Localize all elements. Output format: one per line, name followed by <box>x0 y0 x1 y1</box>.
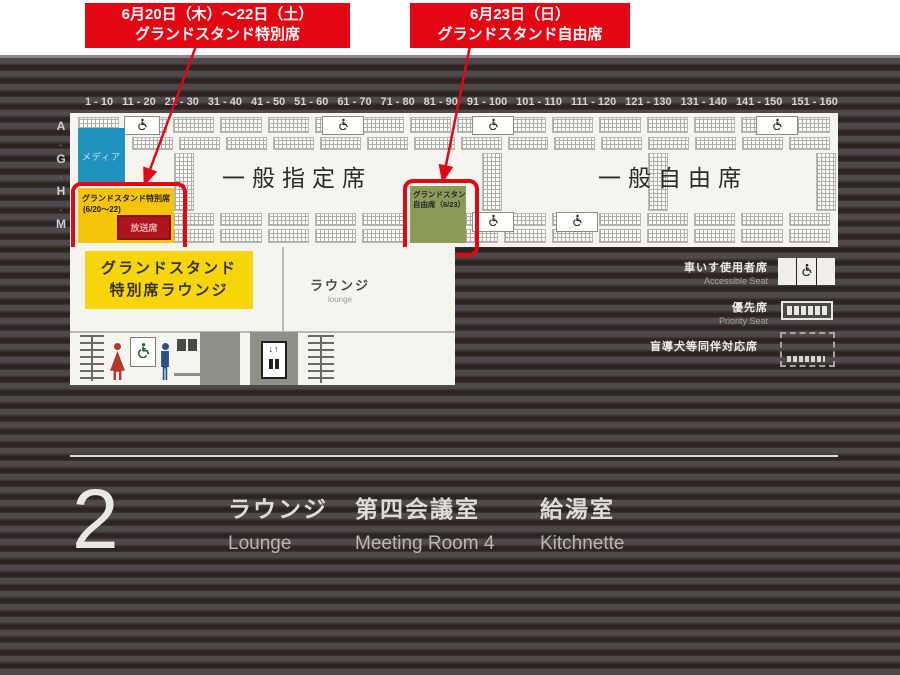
room-lounge: ラウンジ Lounge <box>228 490 328 555</box>
seat-block <box>601 137 642 150</box>
row-letter: H <box>57 175 66 198</box>
room-meeting-jp: 第四会議室 <box>355 490 494 524</box>
accessible-toilet-sign <box>130 337 156 367</box>
elevator-people <box>263 359 285 369</box>
seat-range: 81 - 90 <box>424 96 458 108</box>
seat-block <box>268 229 309 243</box>
seat-block <box>694 213 735 226</box>
row-letter: A <box>57 119 66 133</box>
wall-block <box>200 332 240 385</box>
seat-connector <box>482 153 502 211</box>
service-dog-seat-legend-icon <box>780 332 835 367</box>
male-pictogram-icon <box>158 343 172 380</box>
seat-block <box>315 213 356 226</box>
seat-range: 21 - 30 <box>165 96 199 108</box>
wheelchair-seat-box <box>124 116 160 135</box>
seat-block <box>273 137 314 150</box>
seat-block <box>268 117 309 133</box>
room-kitchnette-jp: 給湯室 <box>540 490 625 524</box>
lounge-room-label: ラウンジ lounge <box>292 275 388 304</box>
wheelchair-icon <box>771 117 783 135</box>
callout-special-seats: 6月20日（木）～22日（土） グランドスタンド特別席 <box>85 3 350 48</box>
row-letter: M <box>56 208 66 231</box>
legend-service-dog-jp: 盲導犬等同伴対応席 <box>598 338 758 354</box>
seat-block <box>647 229 688 243</box>
legend-priority-seat: 優先席 Priority Seat <box>608 299 768 326</box>
wheelchair-seat-box <box>322 116 364 135</box>
media-area: メディア <box>78 128 125 185</box>
seat-block <box>410 117 451 133</box>
pictogram-body <box>110 351 125 380</box>
special-seat-highlight-outline <box>71 182 187 256</box>
seat-cell <box>778 258 796 285</box>
floor-number: 2 <box>72 474 119 564</box>
room-lounge-en: Lounge <box>228 533 328 555</box>
wheelchair-icon <box>337 117 349 135</box>
seat-block <box>789 229 830 243</box>
seat-block <box>552 117 593 133</box>
wheelchair-seat-box <box>472 116 514 135</box>
room-kitchnette-en: Kitchnette <box>540 533 625 555</box>
wheelchair-icon <box>571 213 583 231</box>
lounge-room-jp: ラウンジ <box>292 275 388 294</box>
elevator-arrows: ↓↑ <box>263 343 285 355</box>
room-meeting-room-4: 第四会議室 Meeting Room 4 <box>355 490 494 555</box>
stairs-icon <box>80 335 104 381</box>
baby-care-icon <box>177 339 186 351</box>
seat-block <box>647 117 688 133</box>
wall <box>282 247 284 331</box>
row-letter-column: A G H M <box>54 119 68 231</box>
seat-block <box>789 137 830 150</box>
seat-block <box>220 229 261 243</box>
seat-range: 31 - 40 <box>208 96 242 108</box>
seat-block <box>599 229 640 243</box>
seat-range: 1 - 10 <box>85 96 113 108</box>
seat-range: 11 - 20 <box>122 96 156 108</box>
elevator-icon: ↓↑ <box>261 341 287 379</box>
seat-cell-wheelchair <box>797 258 815 285</box>
wheelchair-seat-box <box>556 212 598 232</box>
seat-block <box>362 213 403 226</box>
female-pictogram-icon <box>110 343 125 380</box>
seat-range: 41 - 50 <box>251 96 285 108</box>
seat-range-header: 1 - 10 11 - 20 21 - 30 31 - 40 41 - 50 5… <box>85 96 838 108</box>
elevator-block: ↓↑ <box>250 332 298 385</box>
seat-range: 61 - 70 <box>337 96 371 108</box>
seat-block <box>220 213 261 226</box>
seat-block <box>362 117 403 133</box>
seat-block <box>132 137 173 150</box>
seat-block <box>220 117 261 133</box>
seat-connector <box>816 153 836 211</box>
seat-block <box>173 117 214 133</box>
seat-block <box>179 137 220 150</box>
seat-range: 101 - 110 <box>516 96 562 108</box>
special-lounge-area: グランドスタンド 特別席ラウンジ <box>85 251 253 309</box>
free-seat-highlight-outline <box>403 179 479 257</box>
seat-cell <box>817 258 835 285</box>
seat-block <box>789 213 830 226</box>
legend-accessible-jp: 車いす使用者席 <box>608 259 768 275</box>
seat-block <box>414 137 455 150</box>
seat-block <box>694 117 735 133</box>
seat-block <box>362 229 403 243</box>
room-lounge-jp: ラウンジ <box>228 490 328 524</box>
seat-block <box>741 213 782 226</box>
seat-block <box>742 137 783 150</box>
accessible-seat-legend-icon <box>778 258 835 285</box>
seat-block <box>554 137 595 150</box>
seat-range: 91 - 100 <box>467 96 507 108</box>
grandstand-map-panel: 一般指定席 一般自由席 メディア グランドスタンド特別席 (6/20～22) 放… <box>70 113 838 247</box>
pictogram-head <box>162 343 169 350</box>
callout-date-line: 6月23日（日） <box>410 5 630 25</box>
seat-block <box>694 229 735 243</box>
callout-area-line: グランドスタンド自由席 <box>410 25 630 45</box>
legend-service-dog-seat: 盲導犬等同伴対応席 <box>598 338 758 354</box>
general-free-area-label: 一般自由席 <box>598 159 748 193</box>
wheelchair-icon <box>487 213 499 231</box>
seat-range: 121 - 130 <box>625 96 671 108</box>
seat-block <box>647 213 688 226</box>
legend-accessible-en: Accessible Seat <box>608 276 768 286</box>
seat-range: 51 - 60 <box>294 96 328 108</box>
small-caption-text <box>174 373 206 376</box>
lounge-room-en: lounge <box>292 295 388 304</box>
seat-range: 111 - 120 <box>571 96 616 108</box>
general-reserved-area-label: 一般指定席 <box>222 159 372 193</box>
seat-block <box>741 229 782 243</box>
row-letter: G <box>56 143 65 166</box>
legend-accessible-seat: 車いす使用者席 Accessible Seat <box>608 259 768 286</box>
seat-block <box>315 229 356 243</box>
room-kitchnette: 給湯室 Kitchnette <box>540 490 625 555</box>
priority-seat-row <box>783 303 831 318</box>
seat-block <box>599 117 640 133</box>
wheelchair-icon <box>135 342 151 363</box>
seat-range: 71 - 80 <box>380 96 414 108</box>
seat-range: 131 - 140 <box>681 96 727 108</box>
pictogram-head <box>114 343 121 350</box>
seat-block <box>461 137 502 150</box>
wheelchair-icon <box>136 117 148 135</box>
seat-block <box>648 137 689 150</box>
wheelchair-seat-box <box>756 116 798 135</box>
seat-block <box>367 137 408 150</box>
wheelchair-icon <box>800 263 813 281</box>
seat-row-upper <box>132 137 830 150</box>
special-lounge-line2: 特別席ラウンジ <box>109 280 228 302</box>
callout-area-line: グランドスタンド特別席 <box>85 25 350 45</box>
room-meeting-en: Meeting Room 4 <box>355 533 494 555</box>
stairs-icon <box>308 335 334 383</box>
seat-block <box>226 137 267 150</box>
legend-priority-en: Priority Seat <box>608 316 768 326</box>
seat-row-top <box>78 117 830 133</box>
seating-map-scan: 6月20日（木）～22日（土） グランドスタンド特別席 6月23日（日） グラン… <box>0 0 900 675</box>
seat-block <box>508 137 549 150</box>
lounge-floor-panel: グランドスタンド 特別席ラウンジ ラウンジ lounge ↓↑ <box>70 247 455 385</box>
pictogram-body <box>158 351 172 380</box>
seat-block <box>599 213 640 226</box>
callout-date-line: 6月20日（木）～22日（土） <box>85 5 350 25</box>
seat-block <box>268 213 309 226</box>
divider-line <box>70 455 838 457</box>
seat-range: 141 - 150 <box>736 96 782 108</box>
special-lounge-line1: グランドスタンド <box>101 258 237 280</box>
callout-free-seats: 6月23日（日） グランドスタンド自由席 <box>410 3 630 48</box>
seat-block <box>320 137 361 150</box>
seat-row-pattern <box>787 356 825 362</box>
seat-block <box>695 137 736 150</box>
priority-seat-legend-icon <box>781 301 833 320</box>
seat-range: 151 - 160 <box>791 96 837 108</box>
legend-priority-jp: 優先席 <box>608 299 768 315</box>
wheelchair-icon <box>487 117 499 135</box>
toilet-icon <box>188 339 197 351</box>
